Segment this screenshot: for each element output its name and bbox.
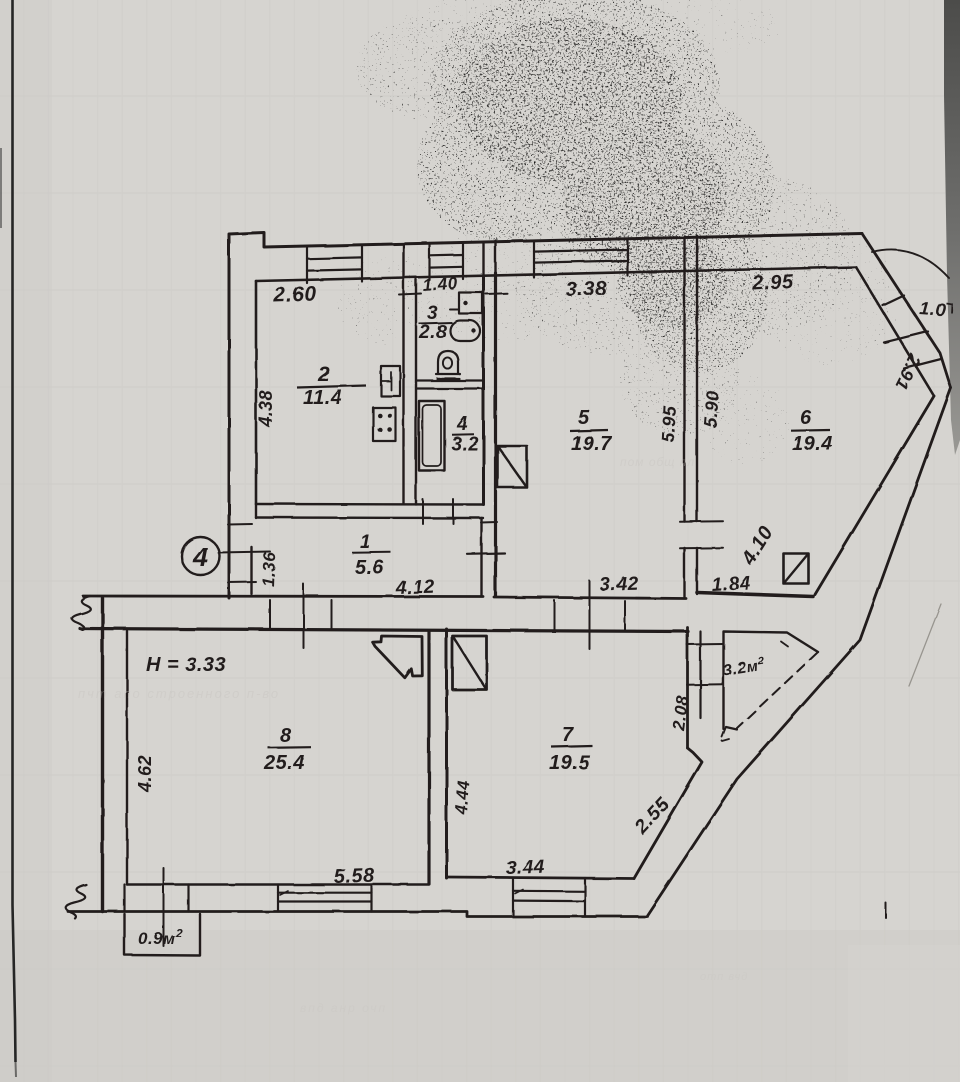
svg-text:5.6: 5.6 [355, 557, 385, 579]
svg-text:5.90: 5.90 [700, 390, 723, 429]
svg-text:1.84: 1.84 [711, 573, 751, 596]
svg-text:1.40: 1.40 [422, 274, 458, 295]
svg-text:11.4: 11.4 [303, 387, 342, 409]
svg-text:H = 3.33: H = 3.33 [146, 654, 226, 676]
svg-text:4.44: 4.44 [452, 779, 473, 816]
svg-text:5.95: 5.95 [658, 405, 680, 444]
svg-text:6: 6 [800, 407, 812, 429]
svg-text:7: 7 [562, 724, 574, 746]
svg-text:2.95: 2.95 [751, 271, 794, 295]
svg-text:4.62: 4.62 [135, 755, 155, 793]
svg-text:4: 4 [456, 414, 468, 435]
svg-text:3.2: 3.2 [451, 434, 479, 455]
svg-text:19.7: 19.7 [571, 433, 612, 455]
svg-text:2: 2 [317, 363, 330, 386]
svg-text:8: 8 [280, 725, 292, 747]
svg-text:4.12: 4.12 [394, 577, 435, 599]
svg-text:5: 5 [578, 407, 590, 429]
svg-text:2.60: 2.60 [272, 283, 317, 308]
svg-text:1.0: 1.0 [919, 298, 947, 320]
svg-text:3: 3 [427, 303, 438, 324]
svg-text:1.36: 1.36 [259, 551, 279, 587]
svg-text:2.8: 2.8 [418, 322, 447, 343]
svg-text:19.4: 19.4 [792, 433, 833, 455]
svg-text:3.42: 3.42 [599, 574, 639, 596]
svg-text:4.38: 4.38 [256, 390, 276, 428]
svg-text:5.58: 5.58 [333, 865, 375, 888]
svg-text:пчт апо строенного п-во: пчт апо строенного п-во [78, 686, 280, 701]
svg-text:4: 4 [192, 542, 209, 572]
svg-text:пом общ пл: пом общ пл [620, 455, 695, 469]
svg-text:3.38: 3.38 [565, 278, 607, 301]
svg-text:впд анр очп: впд анр очп [300, 1001, 387, 1015]
svg-text:19.5: 19.5 [549, 752, 590, 774]
svg-text:25.4: 25.4 [263, 752, 305, 774]
svg-text:3.44: 3.44 [505, 857, 545, 879]
svg-text:1: 1 [360, 532, 371, 553]
svg-text:отп вчд: отп вчд [700, 971, 748, 983]
